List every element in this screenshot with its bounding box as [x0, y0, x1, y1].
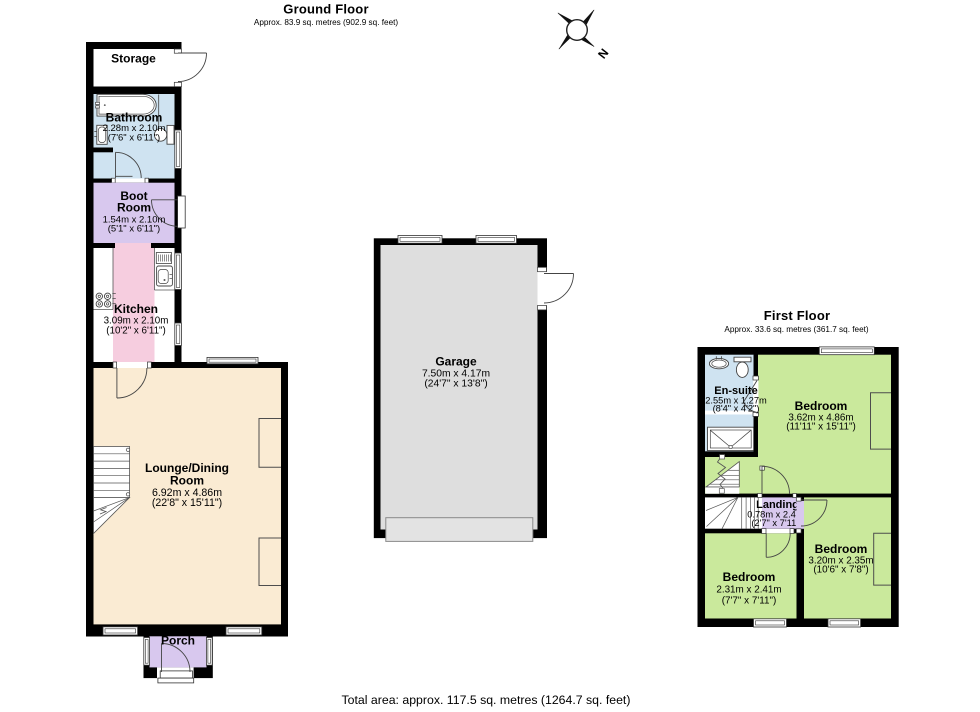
- svg-text:Storage: Storage: [111, 52, 156, 66]
- svg-text:(22'8" x 15'11"): (22'8" x 15'11"): [152, 497, 222, 509]
- svg-text:Bedroom: Bedroom: [795, 399, 848, 413]
- svg-text:Bedroom: Bedroom: [815, 542, 868, 556]
- svg-text:2.31m x 2.41m: 2.31m x 2.41m: [716, 585, 781, 596]
- svg-text:(10'2" x 6'11"): (10'2" x 6'11"): [106, 325, 166, 336]
- svg-text:Bedroom: Bedroom: [723, 570, 776, 584]
- svg-text:Ground Floor: Ground Floor: [283, 1, 368, 16]
- svg-text:(7'7" x 7'11"): (7'7" x 7'11"): [722, 595, 777, 606]
- svg-text:First Floor: First Floor: [764, 308, 830, 323]
- svg-text:(8'4" x 4'2"): (8'4" x 4'2"): [713, 403, 760, 413]
- svg-text:(2'7" x 7'11"): (2'7" x 7'11"): [751, 518, 802, 528]
- svg-text:Room: Room: [117, 201, 151, 215]
- svg-text:(10'6" x 7'8"): (10'6" x 7'8"): [813, 565, 868, 576]
- svg-text:(11'11" x 15'11"): (11'11" x 15'11"): [786, 422, 856, 433]
- svg-text:Approx. 33.6 sq. metres (361.7: Approx. 33.6 sq. metres (361.7 sq. feet): [724, 325, 869, 334]
- svg-text:Garage: Garage: [435, 355, 477, 369]
- svg-text:Kitchen: Kitchen: [114, 302, 158, 316]
- svg-text:(24'7" x 13'8"): (24'7" x 13'8"): [424, 379, 487, 390]
- svg-text:Room: Room: [170, 474, 204, 488]
- svg-text:Approx. 83.9 sq. metres (902.9: Approx. 83.9 sq. metres (902.9 sq. feet): [254, 18, 399, 27]
- svg-text:(5'1" x 6'11"): (5'1" x 6'11"): [108, 224, 160, 235]
- svg-text:Porch: Porch: [161, 634, 195, 648]
- svg-text:Total area: approx. 117.5 sq.: Total area: approx. 117.5 sq. metres (12…: [342, 693, 631, 707]
- svg-text:(7'6" x 6'11"): (7'6" x 6'11"): [108, 133, 160, 144]
